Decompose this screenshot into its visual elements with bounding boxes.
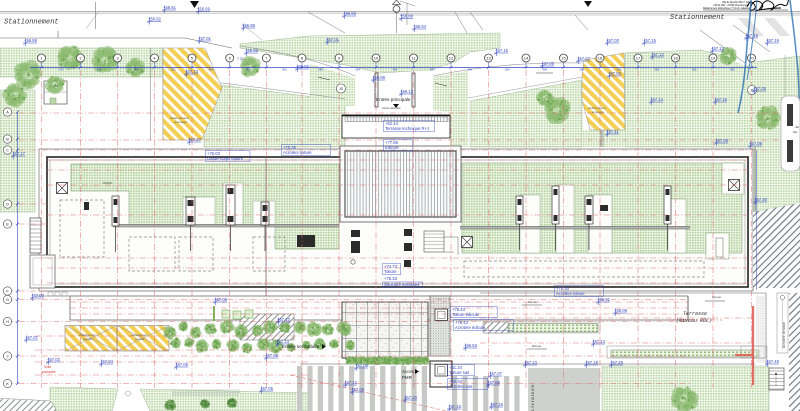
svg-text:+56.88: +56.88 (242, 23, 256, 28)
svg-text:366: 366 (97, 67, 102, 71)
svg-text:thér.: thér. (793, 130, 798, 134)
svg-text:16: 16 (598, 56, 603, 61)
svg-text:Toiture édicule: Toiture édicule (452, 312, 480, 317)
svg-text:364: 364 (318, 67, 323, 71)
svg-text:364: 364 (505, 67, 510, 71)
svg-text:Entrée secondaire: Entrée secondaire (282, 344, 320, 349)
svg-text:Rampe: Rampe (712, 295, 721, 299)
svg-text:+56.66: +56.66 (296, 64, 310, 69)
svg-text:+57.15: +57.15 (495, 48, 509, 53)
svg-text:pompier: pompier (135, 337, 145, 341)
svg-text:364: 364 (392, 67, 397, 71)
svg-text:+56.94: +56.94 (413, 24, 427, 29)
svg-text:+57.49: +57.49 (610, 360, 624, 365)
svg-text:+57.05: +57.05 (715, 138, 729, 143)
svg-text:364: 364 (542, 67, 547, 71)
svg-text:Édicule: Édicule (385, 145, 399, 150)
svg-text:K: K (6, 381, 9, 386)
svg-text:+57.15: +57.15 (714, 97, 728, 102)
svg-text:+57.15: +57.15 (448, 404, 462, 409)
svg-text:pompier: pompier (83, 337, 93, 341)
svg-text:+57.12: +57.12 (344, 380, 358, 385)
svg-text:G: G (6, 297, 9, 302)
svg-text:Toiture: Toiture (384, 269, 397, 274)
svg-text:+57.01: +57.01 (198, 36, 212, 41)
svg-text:pompier: pompier (42, 370, 56, 374)
svg-text:366: 366 (692, 67, 697, 71)
svg-text:+57.13: +57.13 (185, 69, 199, 74)
svg-text:+57.05: +57.05 (175, 362, 189, 367)
svg-text:+57.11: +57.11 (606, 129, 619, 134)
svg-text:+56.88: +56.88 (245, 48, 259, 53)
svg-text:+56.52 NGF - IGN69 Chemineme: +56.52 NGF - IGN69 Cheminement (713, 4, 750, 7)
svg-text:+57.05: +57.05 (541, 61, 555, 66)
svg-text:364: 364 (246, 67, 251, 71)
svg-text:366: 366 (654, 67, 659, 71)
svg-text:Acrotère terrasse: Acrotère terrasse (782, 322, 786, 348)
svg-text:B: B (6, 137, 9, 142)
svg-text:+57.10: +57.10 (277, 317, 291, 322)
svg-text:+57.05: +57.05 (355, 363, 369, 368)
svg-text:+57.05: +57.05 (260, 386, 274, 391)
svg-text:stationnement: stationnement (79, 333, 96, 337)
svg-text:13: 13 (486, 56, 491, 61)
svg-text:362: 362 (171, 67, 176, 71)
svg-text:stationnement: stationnement (131, 333, 148, 337)
svg-text:(Niveau RDC): (Niveau RDC) (676, 318, 712, 324)
svg-text:Acrotère édicule: Acrotère édicule (455, 325, 486, 330)
svg-text:+57.01: +57.01 (326, 37, 340, 42)
svg-text:+57.07: +57.07 (489, 371, 503, 376)
svg-text:Acrotère toiture: Acrotère toiture (556, 291, 585, 296)
svg-text:+57.17: +57.17 (12, 151, 26, 156)
svg-text:+57.07: +57.07 (25, 335, 39, 340)
svg-text:+57.00: +57.00 (31, 293, 45, 298)
svg-text:364: 364 (579, 67, 584, 71)
svg-text:+56.88: +56.88 (400, 14, 414, 19)
svg-text:+59.08: +59.08 (372, 75, 386, 80)
svg-text:12: 12 (449, 56, 454, 61)
svg-text:10: 10 (374, 56, 379, 61)
svg-text:Garde-corps toiture: Garde-corps toiture (207, 156, 244, 161)
svg-text:+57.10: +57.10 (524, 360, 538, 365)
svg-text:+55.91: +55.91 (597, 297, 611, 302)
svg-text:Structure terrasses: Structure terrasses (384, 282, 419, 287)
svg-text:+57.14: +57.14 (650, 97, 664, 102)
svg-text:364: 364 (430, 67, 435, 71)
svg-text:Terrasse technique R+1: Terrasse technique R+1 (385, 126, 430, 131)
svg-text:378: 378 (59, 67, 64, 71)
svg-text:+57.12: +57.12 (592, 339, 606, 344)
svg-text:H: H (6, 319, 9, 324)
svg-text:Jar: Jar (795, 125, 799, 129)
svg-text:D: D (6, 202, 9, 207)
svg-text:+59.13: +59.13 (400, 89, 414, 94)
svg-text:+57.19: +57.19 (766, 38, 780, 43)
svg-text:+56.63: +56.63 (464, 343, 478, 348)
svg-text:Accès: Accès (402, 369, 415, 374)
svg-text:+57.10: +57.10 (404, 395, 418, 400)
svg-text:+57.04: +57.04 (100, 359, 114, 364)
svg-text:+57.05: +57.05 (753, 86, 767, 91)
svg-text:A: A (6, 110, 9, 115)
svg-text:+57.12: +57.12 (711, 46, 725, 51)
svg-text:+57.12: +57.12 (651, 52, 665, 57)
svg-text:Terrasse: Terrasse (683, 311, 707, 317)
svg-text:+57.27: +57.27 (188, 137, 202, 142)
svg-text:J: J (7, 354, 9, 359)
svg-text:E: E (6, 222, 9, 227)
svg-text:364: 364 (355, 67, 360, 71)
svg-text:7.21: 7.21 (237, 57, 244, 61)
svg-text:Stationnement: Stationnement (670, 14, 725, 22)
svg-text:364: 364 (134, 67, 139, 71)
svg-text:364: 364 (209, 67, 214, 71)
svg-text:14: 14 (524, 56, 529, 61)
svg-text:364: 364 (467, 67, 472, 71)
svg-text:+56.82: +56.82 (148, 17, 162, 22)
svg-text:+57.05: +57.05 (351, 387, 365, 392)
svg-text:+57.07: +57.07 (577, 56, 591, 61)
svg-text:+57.00: +57.00 (606, 38, 620, 43)
svg-text:+57.49: +57.49 (766, 359, 780, 364)
svg-text:+56.61: +56.61 (163, 5, 177, 10)
svg-text:+57.09: +57.09 (749, 141, 763, 146)
svg-text:364: 364 (282, 67, 287, 71)
svg-text:15: 15 (561, 56, 566, 61)
svg-text:+56.69: +56.69 (197, 7, 211, 12)
svg-text:+56.83: +56.83 (343, 11, 357, 16)
svg-text:+57.06: +57.06 (487, 380, 501, 385)
svg-text:aménagé: aménagé (592, 110, 604, 114)
svg-text:aménagé: aménagé (174, 120, 187, 124)
svg-text:+57.30: +57.30 (754, 197, 768, 202)
svg-text:Accès véhicules: Accès véhicules (382, 106, 401, 110)
svg-text:+57.09: +57.09 (265, 353, 279, 358)
svg-text:Rampe: Rampe (532, 344, 541, 348)
svg-text:+57.04: +57.04 (608, 71, 622, 76)
svg-text:Toiture sas: Toiture sas (449, 370, 469, 375)
svg-text:+57.18: +57.18 (585, 360, 599, 365)
svg-text:17: 17 (636, 56, 641, 61)
svg-text:Rampe: Rampe (528, 300, 537, 304)
svg-text:Ville de Meudon BM n° 125: Ville de Meudon BM n° 125 (722, 2, 751, 4)
svg-text:Acrotère sas: Acrotère sas (449, 384, 473, 389)
svg-text:C: C (6, 148, 9, 153)
svg-text:Livraison: Livraison (530, 384, 535, 411)
svg-text:+75.33: +75.33 (384, 276, 398, 281)
svg-text:+57.08: +57.08 (214, 297, 228, 302)
svg-text:+57.02: +57.02 (47, 357, 61, 362)
svg-text:Stationnement: Stationnement (4, 19, 59, 27)
svg-text:366: 366 (730, 67, 735, 71)
svg-text:Voie: Voie (44, 365, 51, 369)
svg-text:+56.89: +56.89 (24, 38, 38, 43)
svg-text:18: 18 (673, 56, 678, 61)
svg-text:+57.15: +57.15 (643, 38, 657, 43)
svg-text:JD: JD (339, 87, 344, 91)
svg-text:Entrée principale: Entrée principale (376, 97, 411, 102)
svg-text:PMR: PMR (402, 375, 412, 380)
svg-text:Acrotère toiture: Acrotère toiture (283, 150, 312, 155)
svg-text:+59.09: +59.09 (614, 308, 628, 313)
svg-text:19: 19 (711, 56, 716, 61)
svg-text:+57.15: +57.15 (490, 402, 504, 407)
svg-text:+57.15: +57.15 (745, 33, 759, 38)
